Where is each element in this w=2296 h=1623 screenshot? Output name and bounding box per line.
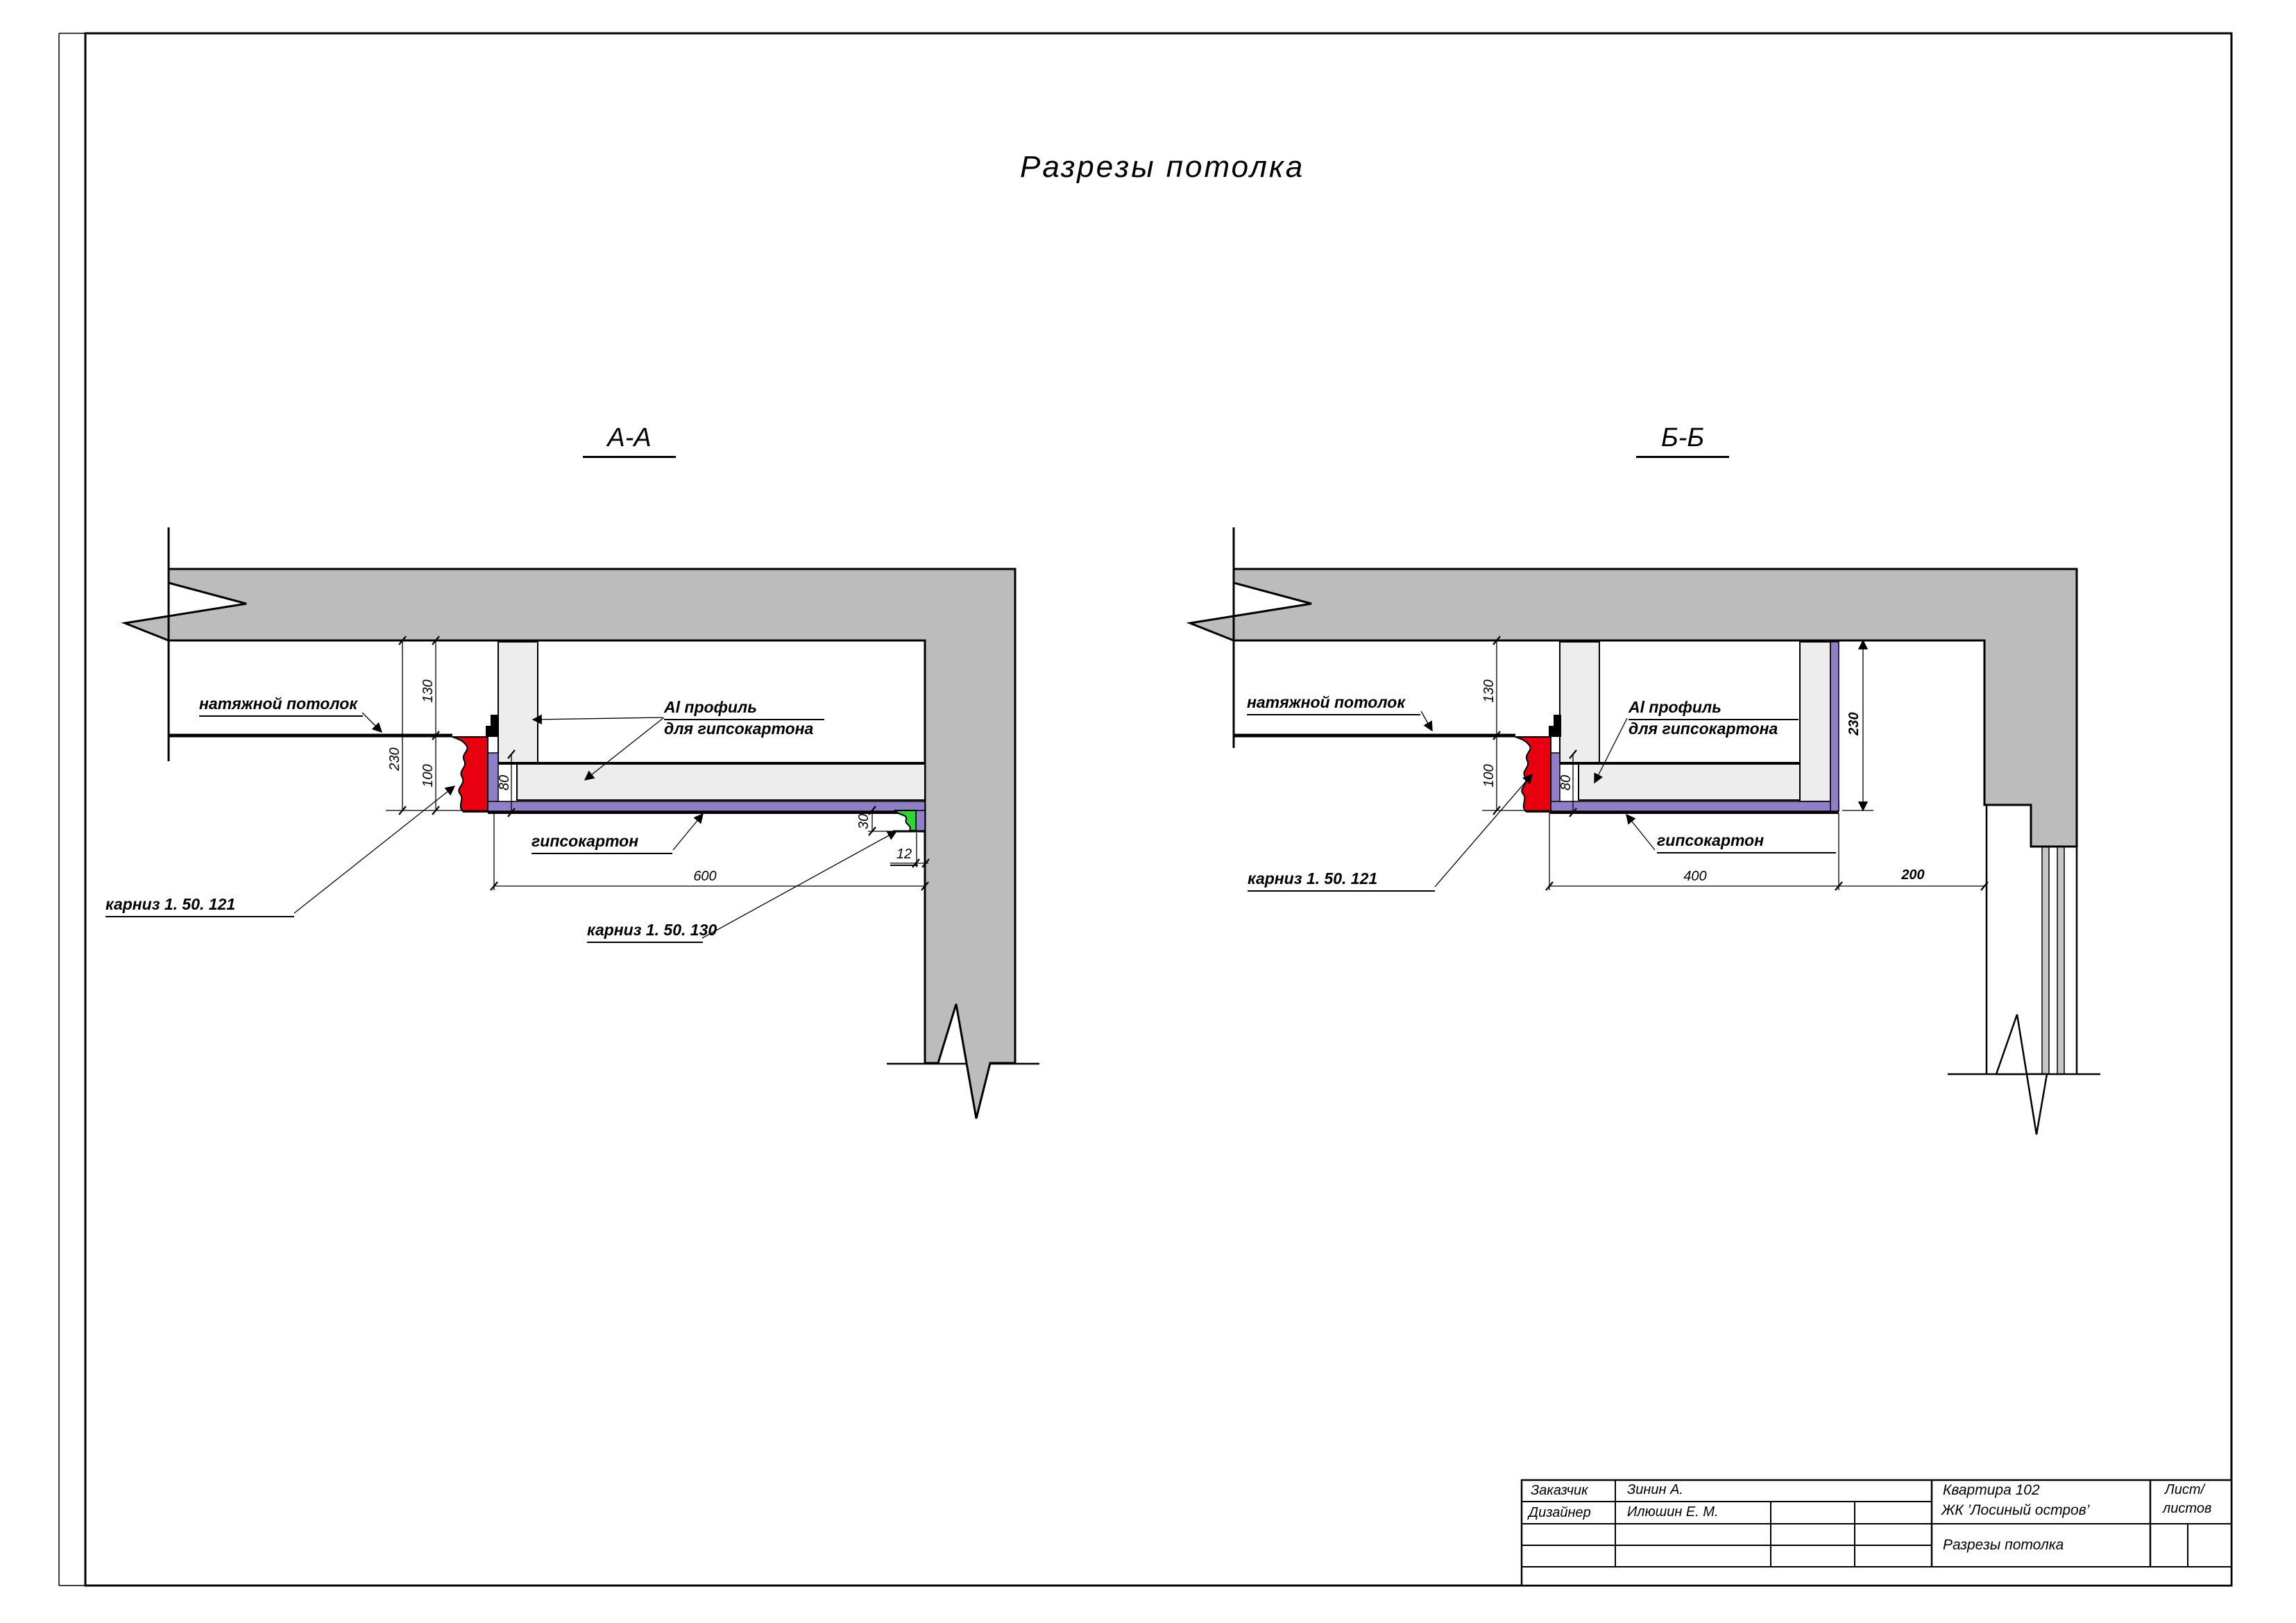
titleblock-project-line1: Квартира 102 bbox=[1943, 1482, 2040, 1499]
dim-130-a: 130 bbox=[420, 662, 436, 720]
cornice-red-b bbox=[1515, 737, 1551, 812]
section-b-geometry bbox=[1190, 527, 2100, 1135]
ceiling-hook-profile-b bbox=[1549, 715, 1561, 737]
titleblock-designer-label: Дизайнер bbox=[1529, 1505, 1591, 1521]
titleblock-customer-name: Зинин А. bbox=[1627, 1482, 1683, 1498]
label-gypsum-a: гипсокартон bbox=[532, 832, 672, 854]
label-al-profile-1-a: Al профиль bbox=[664, 698, 824, 720]
drawing-canvas bbox=[0, 0, 2296, 1623]
label-stretch-ceiling-a: натяжной потолок bbox=[199, 695, 363, 717]
titleblock-project-line2: ЖК ’Лосиный остров’ bbox=[1941, 1502, 2089, 1519]
label-al-profile-2-b: для гипсокартона bbox=[1629, 720, 1778, 738]
dim-600-a: 600 bbox=[677, 869, 733, 885]
titleblock-sheet-label-1: Лист/ bbox=[2165, 1482, 2204, 1498]
dim-130-b: 130 bbox=[1481, 662, 1497, 720]
titleblock-designer-name: Илюшин Е. М. bbox=[1627, 1504, 1719, 1520]
label-stretch-ceiling-b: натяжной потолок bbox=[1247, 693, 1420, 715]
al-profile-vertical-b bbox=[1560, 642, 1599, 763]
window-frame-bar bbox=[2057, 847, 2064, 1074]
gypsum-window-side-b bbox=[1830, 642, 1839, 811]
section-b-header: Б-Б bbox=[1636, 423, 1729, 458]
label-cornice-main-b: карниз 1. 50. 121 bbox=[1248, 869, 1435, 892]
page-title: Разрезы потолка bbox=[1020, 150, 1304, 185]
sheet-frame bbox=[85, 33, 2231, 1586]
gypsum-horizontal-b bbox=[1549, 801, 1839, 811]
dim-230-a: 230 bbox=[387, 730, 402, 788]
cornice-green-a bbox=[895, 810, 916, 831]
ceiling-hook-profile-a bbox=[486, 715, 498, 737]
window-frame-bar bbox=[2042, 847, 2049, 1074]
titleblock-sheet-label-2: листов bbox=[2163, 1501, 2211, 1517]
dim-80-a: 80 bbox=[497, 754, 512, 812]
dim-200-b: 200 bbox=[1885, 867, 1941, 883]
al-profile-window-side-b bbox=[1800, 642, 1830, 801]
titleblock-drawing-title: Разрезы потолка bbox=[1943, 1537, 2064, 1554]
dim-30-a: 30 bbox=[856, 792, 871, 851]
section-a-geometry bbox=[125, 527, 1039, 1119]
label-al-profile-1-b: Al профиль bbox=[1629, 698, 1798, 720]
drawing-sheet: Разрезы потолка А-А натяжной потолок кар… bbox=[0, 0, 2296, 1623]
label-gypsum-b: гипсокартон bbox=[1657, 831, 1836, 853]
label-al-profile-2-a: для гипсокартона bbox=[664, 720, 813, 738]
al-profile-vertical-a bbox=[498, 642, 538, 763]
cornice-red-a bbox=[452, 737, 488, 812]
dim-80-b: 80 bbox=[1558, 754, 1574, 812]
dim-100-b: 100 bbox=[1481, 747, 1497, 805]
al-profile-horizontal-b bbox=[1579, 763, 1800, 800]
label-cornice-main-a: карниз 1. 50. 121 bbox=[105, 895, 294, 917]
dim-400-b: 400 bbox=[1667, 869, 1723, 885]
titleblock-customer-label: Заказчик bbox=[1531, 1483, 1588, 1499]
break-zigzag-b bbox=[1996, 1014, 2047, 1135]
dim-100-a: 100 bbox=[420, 747, 436, 805]
label-cornice-small-a: карниз 1. 50. 130 bbox=[587, 921, 703, 943]
dim-230-b: 230 bbox=[1846, 695, 1862, 753]
section-a-header: А-А bbox=[583, 423, 676, 458]
dim-12-a: 12 bbox=[890, 847, 918, 866]
